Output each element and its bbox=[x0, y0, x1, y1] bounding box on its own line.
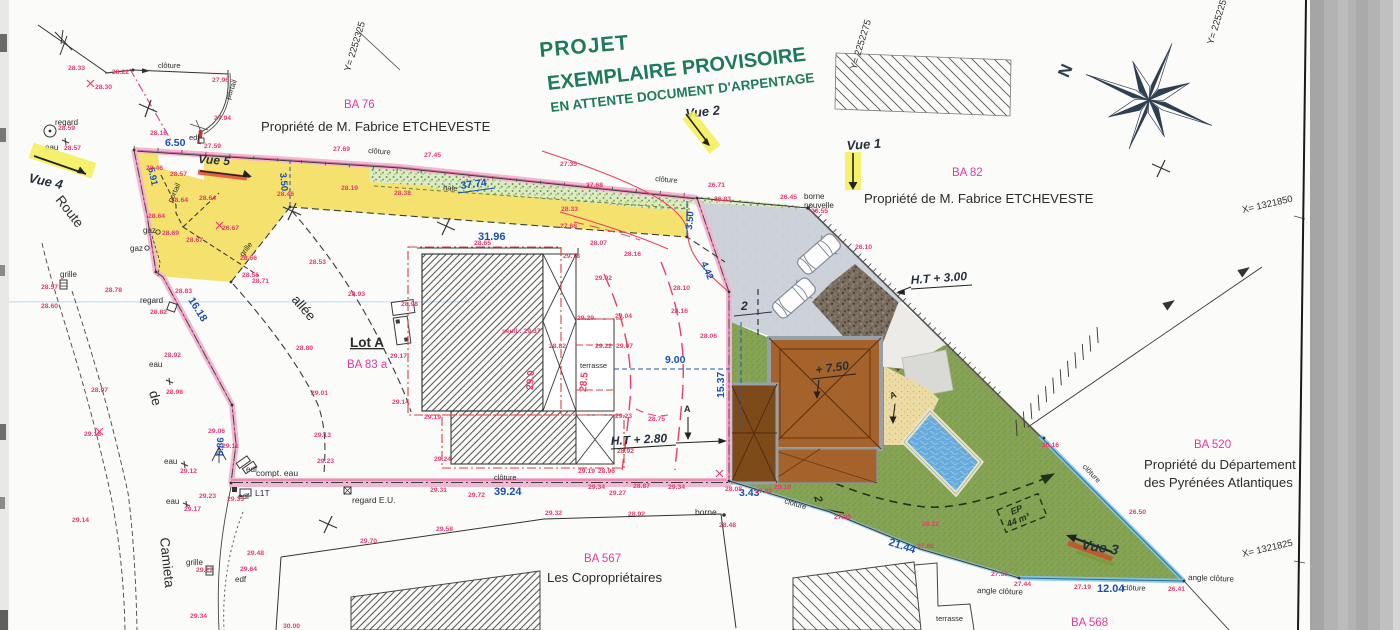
svg-text:28.64: 28.64 bbox=[199, 195, 216, 202]
svg-text:26.41: 26.41 bbox=[1168, 586, 1185, 593]
svg-text:28.97: 28.97 bbox=[91, 387, 108, 394]
svg-text:29.02: 29.02 bbox=[595, 275, 612, 282]
svg-text:26.16: 26.16 bbox=[1042, 442, 1059, 449]
svg-text:26.50: 26.50 bbox=[1129, 509, 1146, 516]
svg-text:29.27: 29.27 bbox=[196, 567, 213, 574]
svg-text:29.06: 29.06 bbox=[208, 428, 225, 435]
svg-text:26.83: 26.83 bbox=[714, 196, 731, 203]
svg-text:28.46: 28.46 bbox=[277, 191, 294, 198]
svg-text:29.13: 29.13 bbox=[314, 432, 331, 439]
svg-text:borne: borne bbox=[804, 192, 825, 201]
svg-text:29.19: 29.19 bbox=[424, 414, 441, 421]
svg-text:15.37: 15.37 bbox=[715, 372, 727, 398]
svg-text:eau: eau bbox=[149, 360, 162, 369]
svg-text:28.16: 28.16 bbox=[624, 251, 641, 258]
svg-text:28.10: 28.10 bbox=[673, 285, 690, 292]
svg-text:28.22: 28.22 bbox=[112, 69, 129, 76]
svg-text:28.57: 28.57 bbox=[64, 145, 81, 152]
svg-text:30.00: 30.00 bbox=[283, 623, 300, 630]
svg-text:27.68: 27.68 bbox=[586, 182, 603, 189]
svg-text:27.66: 27.66 bbox=[917, 543, 934, 550]
svg-text:29.23: 29.23 bbox=[317, 458, 334, 465]
svg-text:28.98: 28.98 bbox=[166, 389, 183, 396]
svg-text:des Pyrénées Atlantiques: des Pyrénées Atlantiques bbox=[1144, 475, 1293, 490]
svg-text:27.98: 27.98 bbox=[755, 488, 772, 495]
svg-text:grille: grille bbox=[186, 558, 203, 567]
svg-text:28.75: 28.75 bbox=[648, 416, 665, 423]
svg-text:edf: edf bbox=[235, 575, 247, 584]
svg-text:29.72: 29.72 bbox=[468, 492, 485, 499]
svg-text:29.32: 29.32 bbox=[545, 510, 562, 517]
svg-text:28.06: 28.06 bbox=[700, 333, 717, 340]
svg-text:Propriété du Département: Propriété du Département bbox=[1144, 457, 1296, 472]
svg-text:grille: grille bbox=[60, 270, 77, 279]
svg-text:28.46: 28.46 bbox=[146, 165, 163, 172]
svg-text:compt. eau: compt. eau bbox=[256, 468, 298, 478]
svg-text:28.80: 28.80 bbox=[296, 345, 313, 352]
svg-text:29.19: 29.19 bbox=[578, 468, 595, 475]
svg-text:29.24: 29.24 bbox=[434, 456, 451, 463]
svg-text:29.64: 29.64 bbox=[240, 566, 257, 573]
svg-text:29.11: 29.11 bbox=[222, 443, 239, 450]
svg-text:29.34: 29.34 bbox=[190, 613, 207, 620]
svg-text:26.71: 26.71 bbox=[708, 182, 725, 189]
svg-text:terrasse: terrasse bbox=[936, 614, 963, 623]
svg-text:28.60: 28.60 bbox=[41, 303, 58, 310]
svg-text:28.57: 28.57 bbox=[170, 171, 187, 178]
svg-text:27.45: 27.45 bbox=[424, 152, 441, 159]
svg-text:28.98: 28.98 bbox=[401, 301, 418, 308]
svg-text:27.68: 27.68 bbox=[560, 223, 577, 230]
svg-text:26.45: 26.45 bbox=[780, 194, 797, 201]
svg-text:29.23: 29.23 bbox=[199, 493, 216, 500]
svg-text:29.70: 29.70 bbox=[360, 538, 377, 545]
svg-text:Propriété de M. Fabrice ETCHEV: Propriété de M. Fabrice ETCHEVESTE bbox=[261, 119, 491, 134]
svg-text:edf: edf bbox=[189, 133, 200, 142]
svg-text:gaz: gaz bbox=[143, 226, 156, 235]
svg-text:29.12: 29.12 bbox=[180, 468, 197, 475]
svg-text:27.35: 27.35 bbox=[560, 161, 577, 168]
svg-text:seuil : 29.37: seuil : 29.37 bbox=[502, 328, 541, 335]
svg-text:29.48: 29.48 bbox=[247, 550, 264, 557]
svg-text:9.00: 9.00 bbox=[665, 354, 686, 366]
svg-text:27.19: 27.19 bbox=[1074, 584, 1091, 591]
svg-text:26.67: 26.67 bbox=[222, 225, 239, 232]
svg-text:clôture: clôture bbox=[494, 473, 517, 482]
svg-text:2: 2 bbox=[740, 299, 748, 313]
svg-text:29.01: 29.01 bbox=[311, 390, 328, 397]
svg-text:Vue 1: Vue 1 bbox=[846, 136, 881, 153]
svg-text:regard E.U.: regard E.U. bbox=[352, 495, 395, 505]
svg-text:27.44: 27.44 bbox=[1014, 581, 1031, 588]
svg-text:BA 568: BA 568 bbox=[1071, 617, 1108, 629]
svg-text:Les Copropriétaires: Les Copropriétaires bbox=[547, 570, 662, 585]
svg-text:clôture: clôture bbox=[368, 146, 391, 157]
svg-text:26.10: 26.10 bbox=[855, 244, 872, 251]
svg-text:angle clôture: angle clôture bbox=[1188, 573, 1235, 584]
svg-text:28.33: 28.33 bbox=[68, 65, 85, 72]
svg-text:27.69: 27.69 bbox=[333, 146, 350, 153]
svg-text:28.92: 28.92 bbox=[628, 511, 645, 518]
svg-text:29.14: 29.14 bbox=[392, 399, 409, 406]
svg-text:6.50: 6.50 bbox=[165, 137, 186, 149]
svg-text:BA 567: BA 567 bbox=[584, 553, 621, 565]
svg-text:regard: regard bbox=[140, 296, 163, 305]
svg-text:28.22: 28.22 bbox=[922, 521, 939, 528]
svg-text:gaz: gaz bbox=[130, 244, 143, 253]
svg-text:12.04: 12.04 bbox=[1097, 583, 1125, 595]
svg-text:29.34: 29.34 bbox=[668, 484, 685, 491]
svg-text:L1T: L1T bbox=[255, 488, 270, 498]
svg-text:29.33: 29.33 bbox=[227, 496, 244, 503]
svg-text:28.53: 28.53 bbox=[309, 259, 326, 266]
svg-text:27.94: 27.94 bbox=[214, 115, 231, 122]
svg-text:28.83: 28.83 bbox=[175, 288, 192, 295]
svg-text:27.96: 27.96 bbox=[212, 77, 229, 84]
svg-text:clôture: clôture bbox=[1123, 583, 1146, 593]
svg-text:28.78: 28.78 bbox=[105, 287, 122, 294]
svg-text:eau: eau bbox=[166, 497, 179, 506]
svg-text:28.59: 28.59 bbox=[58, 125, 75, 132]
svg-text:borne: borne bbox=[695, 507, 717, 517]
svg-text:29.58: 29.58 bbox=[436, 526, 453, 533]
svg-text:haie: haie bbox=[443, 183, 458, 193]
svg-text:28.5: 28.5 bbox=[578, 371, 591, 392]
svg-text:29.34: 29.34 bbox=[588, 484, 605, 491]
svg-text:H.T + 2.80: H.T + 2.80 bbox=[610, 431, 667, 448]
svg-text:28.67: 28.67 bbox=[186, 237, 203, 244]
svg-text:BA 82: BA 82 bbox=[952, 167, 983, 179]
svg-text:28.71: 28.71 bbox=[252, 278, 269, 285]
svg-text:29.31: 29.31 bbox=[430, 487, 447, 494]
svg-text:28.33: 28.33 bbox=[561, 206, 578, 213]
svg-text:Lot A: Lot A bbox=[350, 335, 384, 350]
svg-text:28.30: 28.30 bbox=[95, 84, 112, 91]
svg-text:28.38: 28.38 bbox=[394, 190, 411, 197]
svg-text:28.08: 28.08 bbox=[725, 486, 742, 493]
svg-text:28.92: 28.92 bbox=[164, 352, 181, 359]
svg-text:27.59: 27.59 bbox=[204, 143, 221, 150]
svg-text:terrasse: terrasse bbox=[580, 361, 607, 370]
svg-text:28.48: 28.48 bbox=[719, 522, 736, 529]
svg-text:28.87: 28.87 bbox=[633, 483, 650, 490]
svg-text:29.17: 29.17 bbox=[390, 353, 407, 360]
svg-text:29.0: 29.0 bbox=[525, 370, 537, 390]
svg-text:29.29: 29.29 bbox=[577, 315, 594, 322]
svg-text:29.23: 29.23 bbox=[615, 413, 632, 420]
svg-text:28.64: 28.64 bbox=[171, 197, 188, 204]
svg-text:29.07: 29.07 bbox=[616, 343, 633, 350]
svg-text:28.16: 28.16 bbox=[671, 308, 688, 315]
svg-text:28.19: 28.19 bbox=[341, 185, 358, 192]
svg-text:28.07: 28.07 bbox=[590, 240, 607, 247]
svg-text:28.92: 28.92 bbox=[617, 448, 634, 455]
svg-text:28.64: 28.64 bbox=[148, 213, 165, 220]
svg-text:29.14: 29.14 bbox=[72, 517, 89, 524]
svg-text:29.27: 29.27 bbox=[609, 490, 626, 497]
svg-text:28.93: 28.93 bbox=[348, 291, 365, 298]
svg-text:39.24: 39.24 bbox=[494, 486, 522, 498]
svg-text:eau: eau bbox=[164, 457, 177, 466]
svg-text:Vue 5: Vue 5 bbox=[198, 152, 231, 168]
svg-text:3.50: 3.50 bbox=[684, 211, 697, 230]
svg-text:BA 83 a: BA 83 a bbox=[347, 359, 388, 371]
svg-text:28.16: 28.16 bbox=[150, 130, 167, 137]
svg-text:27.50: 27.50 bbox=[991, 571, 1008, 578]
svg-text:29.19: 29.19 bbox=[774, 484, 791, 491]
svg-text:29.17: 29.17 bbox=[184, 506, 201, 513]
svg-text:Propriété de M. Fabrice ETCHEV: Propriété de M. Fabrice ETCHEVESTE bbox=[864, 191, 1094, 206]
svg-text:clôture: clôture bbox=[158, 61, 181, 70]
svg-text:28.57: 28.57 bbox=[41, 284, 58, 291]
svg-text:BA 520: BA 520 bbox=[1194, 439, 1231, 451]
svg-text:BA 76: BA 76 bbox=[344, 99, 375, 111]
svg-text:28.69: 28.69 bbox=[162, 230, 179, 237]
svg-text:28.66: 28.66 bbox=[240, 255, 257, 262]
svg-text:26.55: 26.55 bbox=[811, 208, 828, 215]
svg-text:29.18: 29.18 bbox=[563, 253, 580, 260]
svg-text:27.90: 27.90 bbox=[834, 514, 851, 521]
svg-text:29.22: 29.22 bbox=[595, 343, 612, 350]
svg-text:3.50: 3.50 bbox=[277, 172, 290, 191]
svg-text:28.96: 28.96 bbox=[598, 468, 615, 475]
svg-text:A: A bbox=[684, 404, 691, 414]
svg-text:28.65: 28.65 bbox=[474, 240, 491, 247]
svg-text:28.82: 28.82 bbox=[150, 309, 167, 316]
svg-text:28.82: 28.82 bbox=[549, 343, 566, 350]
svg-text:29.04: 29.04 bbox=[615, 313, 632, 320]
